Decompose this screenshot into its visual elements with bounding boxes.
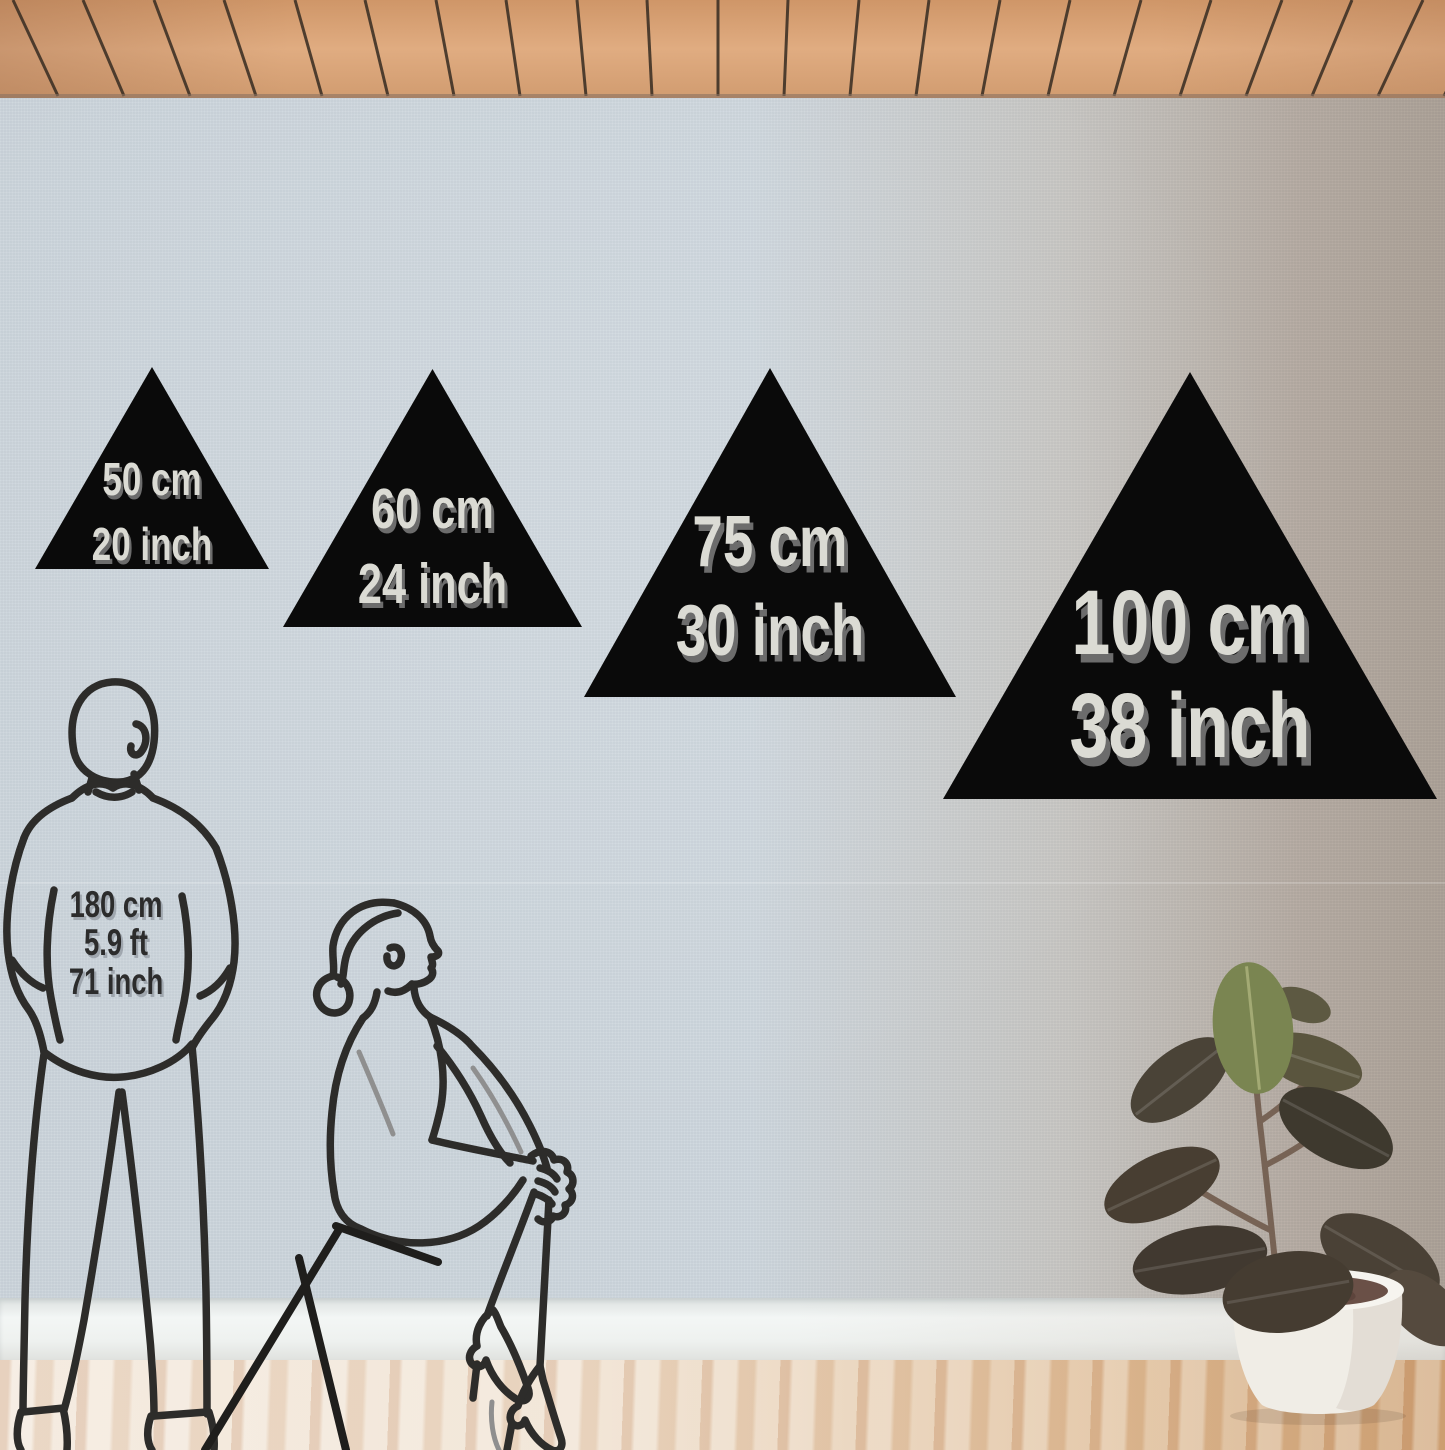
person-height-ft: 5.9 ft [57, 924, 175, 962]
person-height-cm: 180 cm [57, 886, 175, 924]
product-size-guide-scene: 50 cm 20 inch 60 cm 24 inch 75 cm 30 inc… [0, 0, 1445, 1450]
person-height-in: 71 inch [57, 963, 175, 1001]
rubber-plant [0, 0, 1445, 1450]
person-height-label: 180 cm 5.9 ft 71 inch [57, 886, 175, 1001]
